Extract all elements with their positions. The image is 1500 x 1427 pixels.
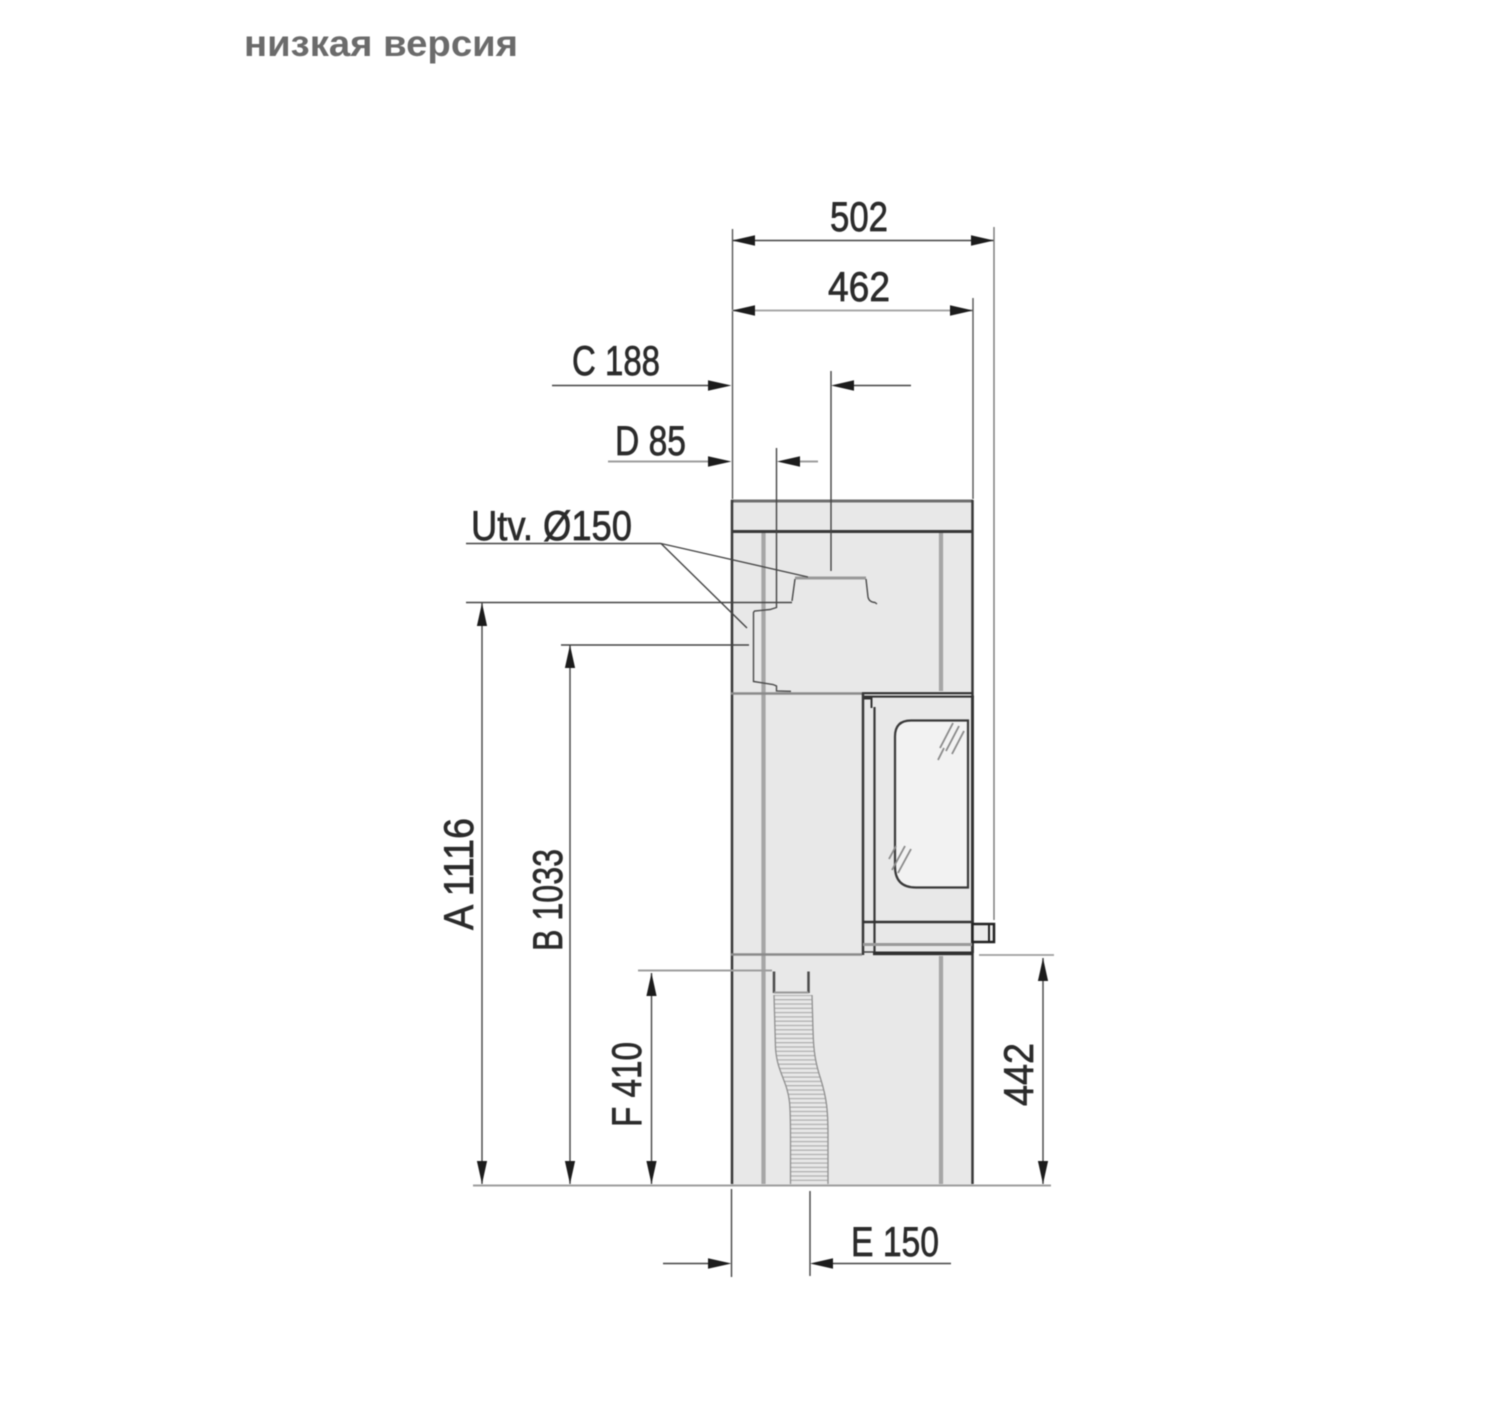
svg-text:E 150: E 150 xyxy=(851,1218,939,1265)
svg-text:низкая версия: низкая версия xyxy=(244,23,518,64)
svg-text:D 85: D 85 xyxy=(615,417,686,464)
svg-text:C 188: C 188 xyxy=(572,337,660,384)
svg-text:A 1116: A 1116 xyxy=(435,818,482,930)
svg-text:462: 462 xyxy=(828,263,890,310)
svg-text:502: 502 xyxy=(830,193,888,240)
svg-text:B 1033: B 1033 xyxy=(524,849,571,951)
svg-text:Utv. Ø150: Utv. Ø150 xyxy=(471,502,632,549)
svg-text:442: 442 xyxy=(995,1043,1042,1106)
svg-text:F 410: F 410 xyxy=(603,1042,650,1127)
